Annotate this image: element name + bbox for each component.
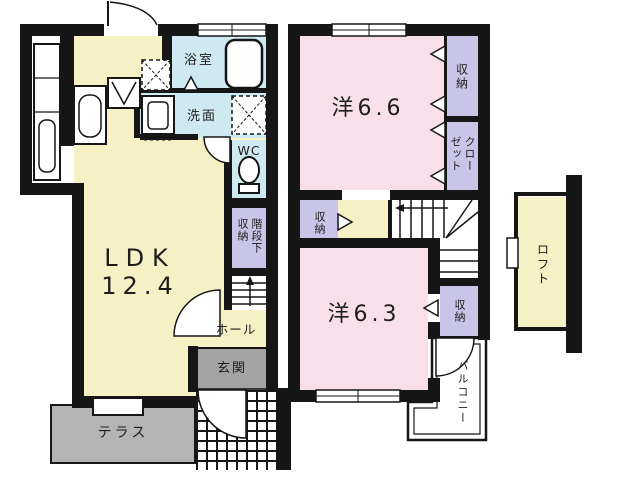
window-icon xyxy=(198,24,266,36)
hall-label: ホール xyxy=(204,318,268,338)
loft-label: ロフト xyxy=(518,228,566,302)
balcony-label: バルコニー xyxy=(446,350,478,434)
bedroom-63-label: 洋6.3 xyxy=(300,296,428,328)
bathtub-icon xyxy=(226,40,262,88)
washbasin-icon xyxy=(142,96,174,140)
bathroom-label: 浴室 xyxy=(172,48,226,68)
washroom-label: 洗面 xyxy=(172,104,232,124)
terrace-step-icon xyxy=(93,398,143,415)
washroom-door-icon xyxy=(204,137,230,163)
wc-label: WC xyxy=(232,142,266,158)
bath-door-icon xyxy=(184,77,198,90)
washer-box-icon xyxy=(232,96,266,134)
closet-label: クローゼット xyxy=(444,124,480,188)
front-door-icon xyxy=(198,390,246,438)
stairs-floor1-icon xyxy=(232,276,266,306)
bedroom-66-label: 洋6.6 xyxy=(296,90,440,122)
storage-upper-label: 収納 xyxy=(446,42,478,112)
entry-door-top-icon xyxy=(108,1,157,26)
under-stairs-storage-label: 階段下収納 xyxy=(228,206,270,270)
toilet-icon xyxy=(239,157,259,193)
hatch-box-icon xyxy=(142,60,170,90)
ldk-name: LDK xyxy=(104,244,176,272)
entrance-label: 玄関 xyxy=(198,356,266,376)
hall-storage-label: 収納 xyxy=(300,202,338,244)
bedroom2-storage-label: 収納 xyxy=(440,288,478,334)
loft-window-icon xyxy=(507,238,518,268)
ldk-label: LDK 12.4 xyxy=(84,240,196,304)
ldk-size: 12.4 xyxy=(101,272,178,300)
terrace-label: テラス xyxy=(50,422,196,442)
floorplan-canvas: LDK 12.4 浴室 洗面 WC 階段下収納 ホール 玄関 テラス 洋6.6 … xyxy=(0,0,640,480)
